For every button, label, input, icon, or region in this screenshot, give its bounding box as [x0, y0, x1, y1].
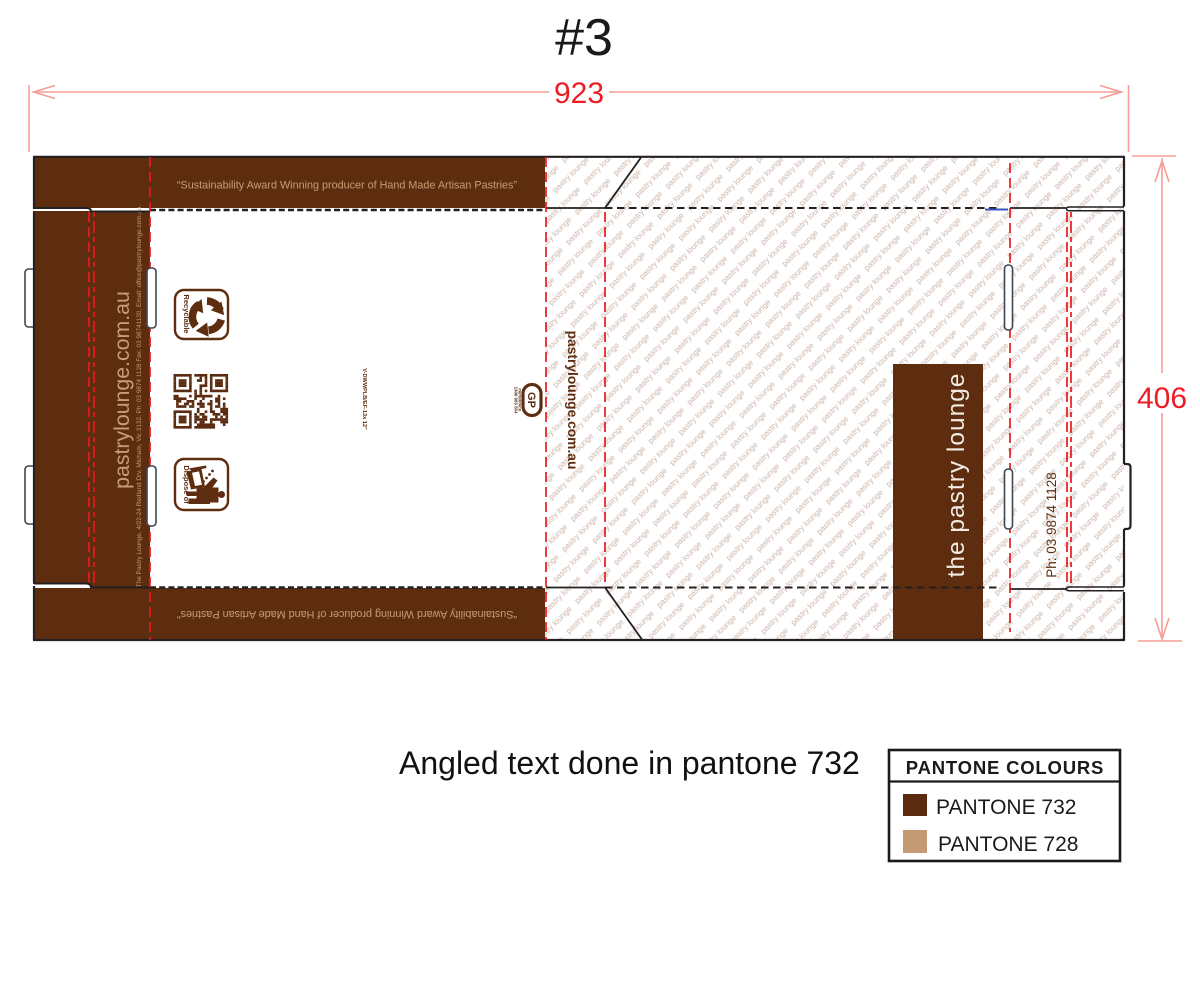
svg-text:PANTONE COLOURS: PANTONE COLOURS [906, 757, 1104, 778]
svg-text:PANTONE 728: PANTONE 728 [938, 833, 1078, 856]
svg-text:PANTONE 732: PANTONE 732 [936, 796, 1076, 819]
svg-text:#3: #3 [555, 9, 613, 67]
svg-text:“Sustainability Award Winning: “Sustainability Award Winning producer o… [177, 608, 517, 620]
svg-text:Angled text done in pantone 7: Angled text done in pantone 732 [399, 745, 860, 781]
svg-text:406: 406 [1137, 382, 1187, 415]
svg-text:pastrylounge.com.au: pastrylounge.com.au [565, 331, 580, 470]
svg-text:The Pastry Lounge, 4/22-24 Red: The Pastry Lounge, 4/22-24 Redland Drv, … [136, 205, 143, 588]
svg-text:Ph: 03 9874 1128: Ph: 03 9874 1128 [1044, 472, 1059, 578]
svg-text:“Sustainability Award Winning: “Sustainability Award Winning producer o… [177, 180, 517, 192]
svg-text:V-DWWPLB/EF-13x 12”: V-DWWPLB/EF-13x 12” [361, 368, 367, 430]
svg-text:the pastry lounge: the pastry lounge [943, 373, 970, 578]
svg-text:GP: GP [525, 392, 537, 408]
svg-text:1300 665 554: 1300 665 554 [514, 387, 519, 414]
svg-text:pastrylounge.com.au: pastrylounge.com.au [110, 291, 134, 489]
svg-text:923: 923 [554, 77, 604, 110]
